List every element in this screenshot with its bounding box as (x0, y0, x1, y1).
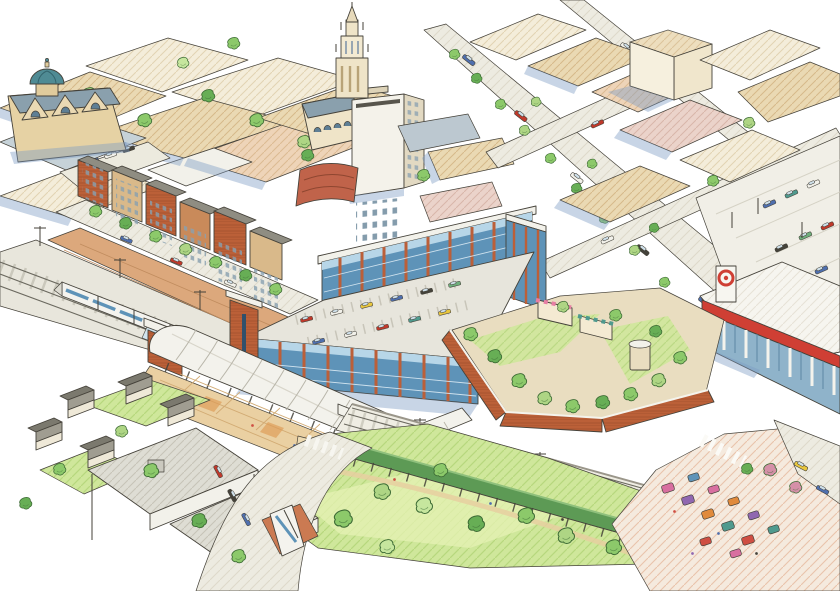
bullseye-pylon-sign (716, 266, 736, 302)
architectural-rendering (0, 0, 840, 591)
